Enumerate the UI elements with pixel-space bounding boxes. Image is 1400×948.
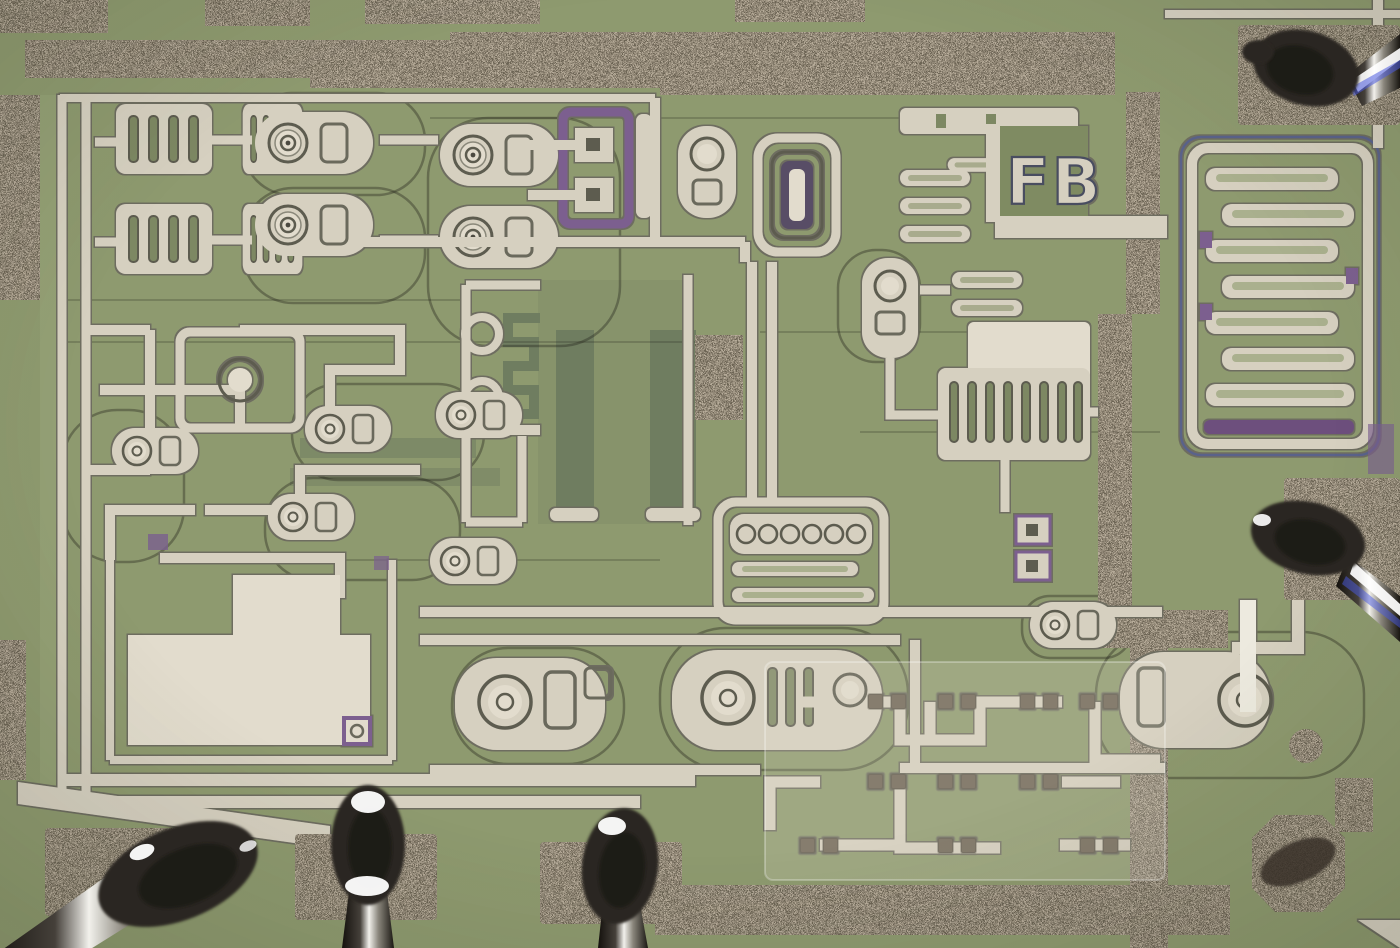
die-photomicrograph: FB <box>0 0 1400 948</box>
vignette <box>0 0 1400 948</box>
die-svg: FB <box>0 0 1400 948</box>
